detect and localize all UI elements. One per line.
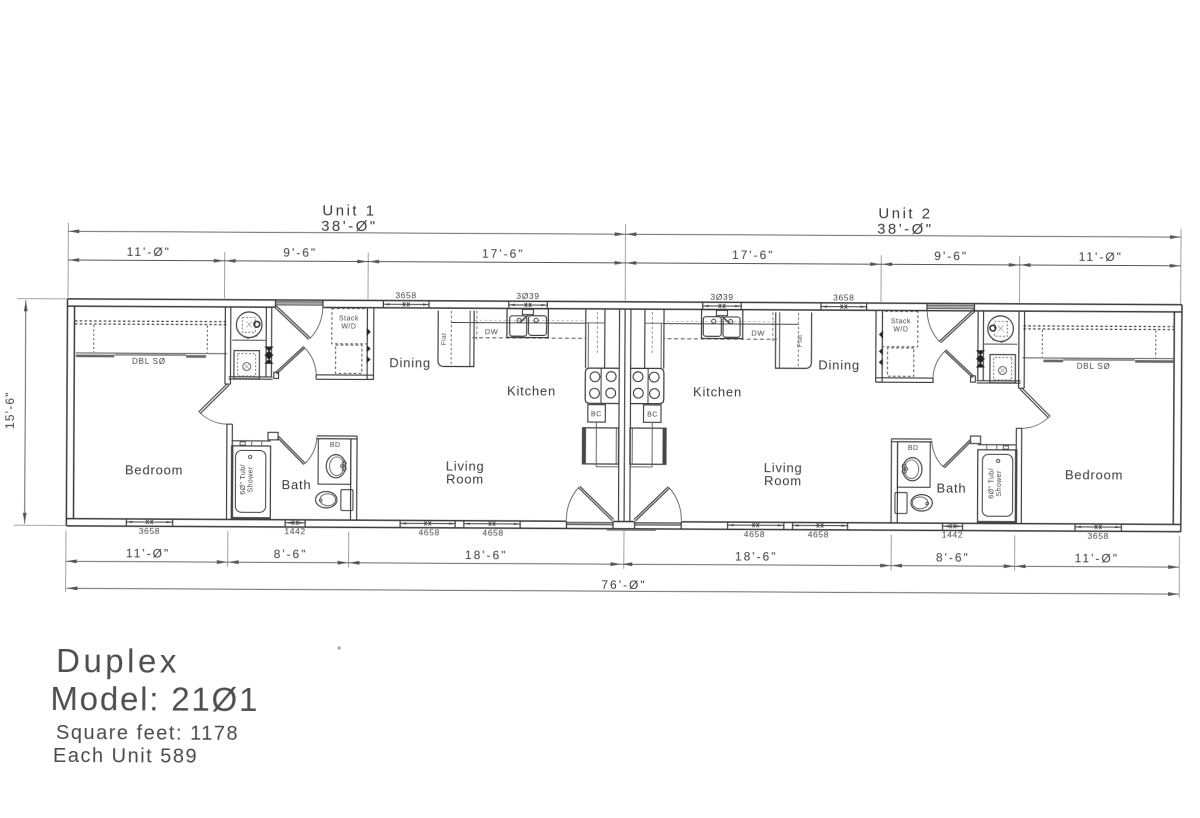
svg-text:11'-Ø": 11'-Ø" xyxy=(126,546,170,560)
svg-text:3658: 3658 xyxy=(833,292,854,302)
svg-text:9'-6": 9'-6" xyxy=(934,249,968,263)
svg-text:3658: 3658 xyxy=(1087,531,1108,541)
svg-text:4658: 4658 xyxy=(419,527,440,537)
svg-text:Square feet: 1178: Square feet: 1178 xyxy=(56,722,239,745)
svg-text:Dining: Dining xyxy=(818,357,860,372)
svg-text:Bedroom: Bedroom xyxy=(1065,467,1123,482)
svg-text:4658: 4658 xyxy=(744,529,765,539)
svg-text:11'-Ø": 11'-Ø" xyxy=(1079,250,1123,264)
svg-text:DW: DW xyxy=(485,327,499,336)
svg-text:6Ø" Tub/: 6Ø" Tub/ xyxy=(240,464,247,495)
svg-text:BC: BC xyxy=(591,411,602,418)
svg-text:4658: 4658 xyxy=(482,528,503,538)
svg-text:Each Unit 589: Each Unit 589 xyxy=(53,745,198,768)
svg-text:15'-6": 15'-6" xyxy=(3,391,17,429)
svg-text:DBL SØ: DBL SØ xyxy=(1077,362,1111,371)
svg-text:18'-6": 18'-6" xyxy=(735,549,778,563)
svg-text:BC: BC xyxy=(647,411,658,418)
svg-text:17'-6": 17'-6" xyxy=(482,247,525,261)
svg-text:3Ø39: 3Ø39 xyxy=(516,291,539,301)
svg-text:8'-6": 8'-6" xyxy=(936,550,970,564)
svg-text:Stack: Stack xyxy=(339,315,359,322)
svg-text:Room: Room xyxy=(764,473,802,488)
svg-text:Bedroom: Bedroom xyxy=(125,462,183,477)
svg-text:Shower: Shower xyxy=(247,466,254,492)
svg-text:11'-Ø": 11'-Ø" xyxy=(1075,551,1119,565)
svg-text:18'-6": 18'-6" xyxy=(465,548,508,562)
svg-text:17'-6": 17'-6" xyxy=(732,248,775,262)
svg-text:38'-Ø": 38'-Ø" xyxy=(877,221,934,238)
svg-text:Stack: Stack xyxy=(891,318,911,325)
svg-text:11'-Ø": 11'-Ø" xyxy=(127,245,171,259)
svg-text:3658: 3658 xyxy=(139,526,160,536)
svg-text:W/D: W/D xyxy=(341,323,356,330)
svg-text:4658: 4658 xyxy=(808,529,829,539)
svg-text:Flat: Flat xyxy=(441,333,448,345)
svg-text:Duplex: Duplex xyxy=(56,642,180,680)
svg-text:DW: DW xyxy=(751,329,765,338)
svg-text:3658: 3658 xyxy=(395,290,416,300)
svg-text:BD: BD xyxy=(330,442,341,449)
svg-text:Model: 21Ø1: Model: 21Ø1 xyxy=(50,680,259,718)
svg-text:BD: BD xyxy=(908,445,919,452)
svg-text:DBL SØ: DBL SØ xyxy=(132,357,166,366)
svg-text:Bath: Bath xyxy=(937,481,967,496)
svg-text:8'-6": 8'-6" xyxy=(274,547,308,561)
svg-text:Flat: Flat xyxy=(797,335,804,347)
svg-text:6Ø" Tub/: 6Ø" Tub/ xyxy=(989,468,996,499)
svg-text:Shower: Shower xyxy=(996,470,1003,496)
svg-text:W/D: W/D xyxy=(893,326,908,333)
svg-text:Dining: Dining xyxy=(389,355,431,370)
svg-text:9'-6": 9'-6" xyxy=(283,246,317,260)
svg-text:Kitchen: Kitchen xyxy=(507,383,556,398)
svg-text:Kitchen: Kitchen xyxy=(693,384,742,399)
svg-text:Room: Room xyxy=(446,471,484,486)
svg-text:38'-Ø": 38'-Ø" xyxy=(321,218,378,235)
svg-text:76'-Ø": 76'-Ø" xyxy=(601,578,646,592)
svg-text:Bath: Bath xyxy=(282,477,312,492)
svg-text:1442: 1442 xyxy=(942,529,963,539)
svg-text:3Ø39: 3Ø39 xyxy=(710,292,733,302)
svg-text:1442: 1442 xyxy=(284,526,305,536)
